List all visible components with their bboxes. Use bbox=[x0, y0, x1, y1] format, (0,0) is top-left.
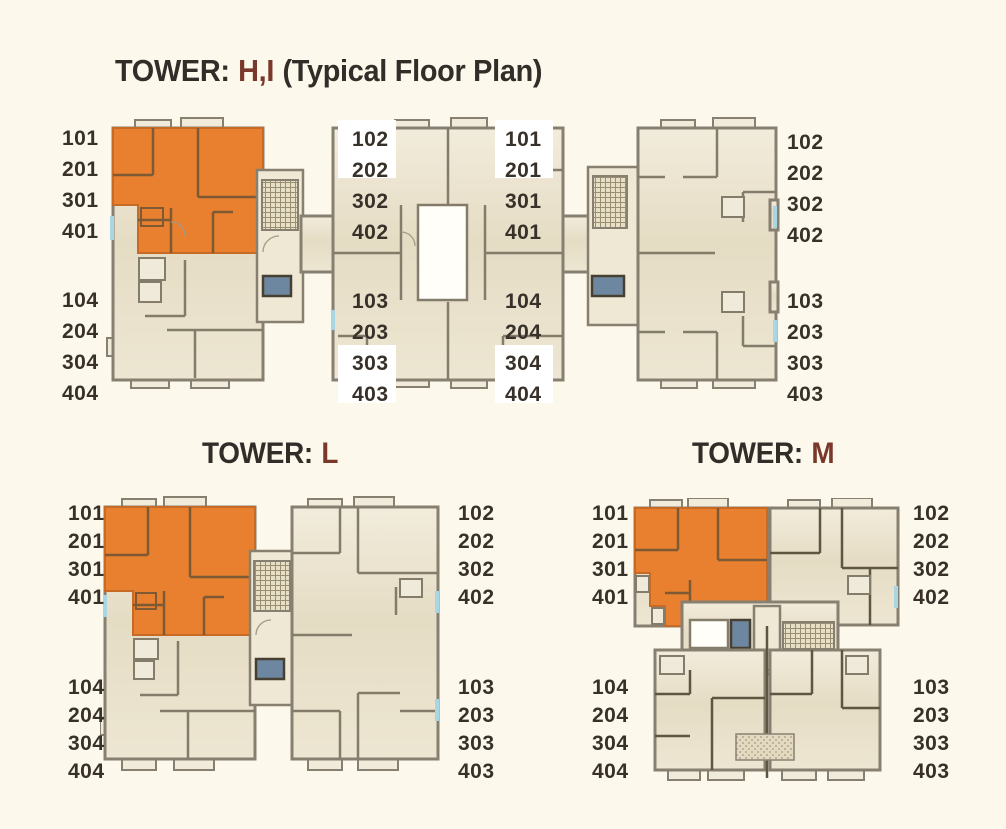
unit-label: 401 bbox=[592, 584, 629, 612]
unit-labels-hi-mid-right-top: 101 201 301 401 bbox=[505, 124, 542, 248]
elevator bbox=[731, 620, 750, 648]
unit-label: 103 bbox=[458, 674, 495, 702]
unit-labels-hi-mid-left-top: 102 202 302 402 bbox=[352, 124, 389, 248]
elevator bbox=[592, 276, 624, 296]
unit-labels-hi-mid-right-bottom: 104 204 304 404 bbox=[505, 286, 542, 410]
unit-label: 103 bbox=[352, 286, 389, 317]
hi-left-wing bbox=[107, 118, 263, 388]
unit-label: 101 bbox=[592, 500, 629, 528]
page-title-tower-hi: TOWER:H,I(Typical Floor Plan) bbox=[115, 53, 542, 89]
unit-label: 202 bbox=[352, 155, 389, 186]
stairs bbox=[593, 176, 627, 228]
void bbox=[690, 620, 728, 648]
unit-label: 103 bbox=[913, 674, 950, 702]
stairs bbox=[783, 622, 834, 649]
unit-label: 202 bbox=[458, 528, 495, 556]
unit-labels-l-right-top: 102 202 302 402 bbox=[458, 500, 495, 612]
unit-labels-hi-right-top: 102 202 302 402 bbox=[787, 127, 824, 251]
floor-plan-sheet: TOWER:H,I(Typical Floor Plan) bbox=[0, 0, 1006, 829]
elevator bbox=[256, 659, 284, 679]
unit-label: 303 bbox=[787, 348, 824, 379]
unit-labels-m-left-top: 101 201 301 401 bbox=[592, 500, 629, 612]
title-accent: M bbox=[811, 437, 834, 470]
unit-label: 301 bbox=[68, 556, 105, 584]
unit-label: 101 bbox=[62, 123, 99, 154]
unit-label: 404 bbox=[505, 379, 542, 410]
hi-core-left bbox=[257, 170, 303, 322]
unit-label: 203 bbox=[352, 317, 389, 348]
page-title-tower-m: TOWER:M bbox=[692, 437, 843, 471]
unit-label: 404 bbox=[592, 758, 629, 786]
floorplan-tower-m bbox=[630, 498, 905, 788]
unit-label: 404 bbox=[68, 758, 105, 786]
hi-core-right bbox=[588, 167, 638, 325]
unit-label: 301 bbox=[505, 186, 542, 217]
unit-label: 104 bbox=[592, 674, 629, 702]
unit-label: 203 bbox=[458, 702, 495, 730]
unit-labels-l-left-bottom: 104 204 304 404 bbox=[68, 674, 105, 786]
unit-label: 104 bbox=[505, 286, 542, 317]
l-left-block bbox=[100, 497, 255, 770]
unit-label: 202 bbox=[787, 158, 824, 189]
unit-labels-m-right-bottom: 103 203 303 403 bbox=[913, 674, 950, 786]
unit-label: 304 bbox=[68, 730, 105, 758]
title-prefix: TOWER: bbox=[202, 437, 313, 470]
unit-label: 201 bbox=[68, 528, 105, 556]
unit-label: 102 bbox=[787, 127, 824, 158]
l-core bbox=[250, 551, 294, 705]
title-prefix: TOWER: bbox=[115, 53, 230, 88]
unit-labels-m-left-bottom: 104 204 304 404 bbox=[592, 674, 629, 786]
unit-labels-l-left-top: 101 201 301 401 bbox=[68, 500, 105, 612]
unit-label: 402 bbox=[458, 584, 495, 612]
unit-label: 404 bbox=[62, 378, 99, 409]
unit-label: 403 bbox=[352, 379, 389, 410]
unit-label: 104 bbox=[62, 285, 99, 316]
floorplan-tower-l bbox=[100, 495, 450, 795]
title-accent: H,I bbox=[238, 53, 274, 88]
unit-label: 102 bbox=[913, 500, 950, 528]
unit-label: 204 bbox=[68, 702, 105, 730]
unit-labels-hi-left-bottom: 104 204 304 404 bbox=[62, 285, 99, 409]
l-right-block bbox=[292, 497, 439, 770]
unit-labels-m-right-top: 102 202 302 402 bbox=[913, 500, 950, 612]
unit-label: 303 bbox=[913, 730, 950, 758]
unit-label: 204 bbox=[592, 702, 629, 730]
unit-label: 302 bbox=[787, 189, 824, 220]
unit-labels-l-right-bottom: 103 203 303 403 bbox=[458, 674, 495, 786]
paved-connector bbox=[736, 734, 794, 760]
unit-label: 101 bbox=[505, 124, 542, 155]
courtyard bbox=[418, 205, 467, 300]
unit-label: 102 bbox=[352, 124, 389, 155]
unit-label: 402 bbox=[913, 584, 950, 612]
title-prefix: TOWER: bbox=[692, 437, 803, 470]
title-suffix: (Typical Floor Plan) bbox=[282, 53, 542, 88]
unit-label: 403 bbox=[913, 758, 950, 786]
unit-label: 403 bbox=[458, 758, 495, 786]
unit-labels-hi-left-top: 101 201 301 401 bbox=[62, 123, 99, 247]
unit-label: 301 bbox=[592, 556, 629, 584]
stairs bbox=[254, 561, 290, 611]
unit-label: 403 bbox=[787, 379, 824, 410]
unit-label: 401 bbox=[68, 584, 105, 612]
unit-label: 302 bbox=[352, 186, 389, 217]
elevator bbox=[263, 276, 291, 296]
unit-label: 201 bbox=[592, 528, 629, 556]
unit-labels-hi-mid-left-bottom: 103 203 303 403 bbox=[352, 286, 389, 410]
hi-right-wing bbox=[638, 118, 778, 388]
unit-label: 204 bbox=[505, 317, 542, 348]
unit-label: 204 bbox=[62, 316, 99, 347]
page-title-tower-l: TOWER:L bbox=[202, 437, 346, 471]
unit-label: 304 bbox=[592, 730, 629, 758]
unit-label: 401 bbox=[505, 217, 542, 248]
unit-label: 303 bbox=[458, 730, 495, 758]
unit-labels-hi-right-bottom: 103 203 303 403 bbox=[787, 286, 824, 410]
unit-label: 201 bbox=[505, 155, 542, 186]
unit-label: 302 bbox=[458, 556, 495, 584]
unit-label: 402 bbox=[352, 217, 389, 248]
unit-label: 104 bbox=[68, 674, 105, 702]
unit-label: 101 bbox=[68, 500, 105, 528]
unit-label: 304 bbox=[505, 348, 542, 379]
unit-label: 302 bbox=[913, 556, 950, 584]
unit-label: 401 bbox=[62, 216, 99, 247]
unit-label: 402 bbox=[787, 220, 824, 251]
unit-label: 303 bbox=[352, 348, 389, 379]
unit-label: 202 bbox=[913, 528, 950, 556]
unit-label: 103 bbox=[787, 286, 824, 317]
stairs bbox=[262, 180, 298, 230]
unit-label: 102 bbox=[458, 500, 495, 528]
unit-label: 304 bbox=[62, 347, 99, 378]
floorplan-tower-hi bbox=[105, 112, 780, 395]
unit-label: 201 bbox=[62, 154, 99, 185]
unit-label: 203 bbox=[913, 702, 950, 730]
title-accent: L bbox=[321, 437, 338, 470]
unit-label: 301 bbox=[62, 185, 99, 216]
unit-label: 203 bbox=[787, 317, 824, 348]
